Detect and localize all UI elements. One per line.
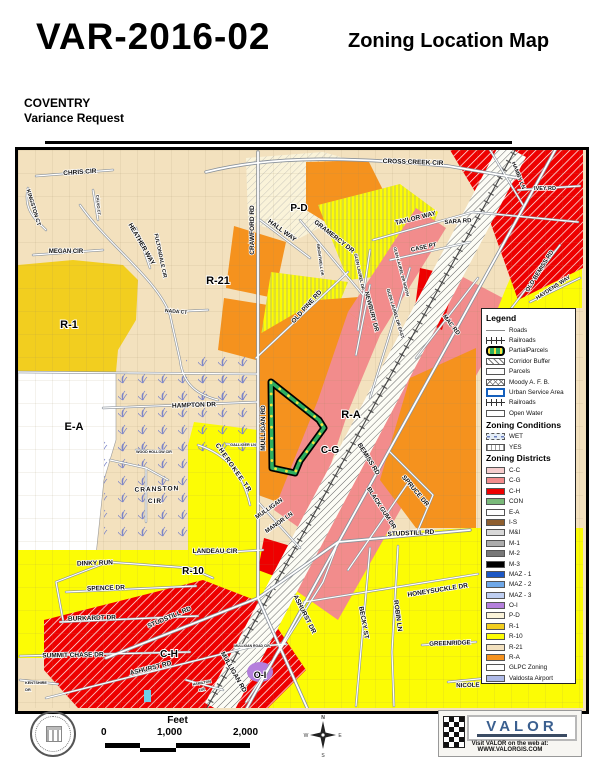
- maz-1-swatch: [486, 571, 505, 578]
- legend-label: PartialParcels: [509, 347, 548, 354]
- open-water-swatch: [486, 410, 505, 417]
- legend-panel: Legend RoadsRailroadsPartialParcelsCorri…: [481, 308, 576, 684]
- legend-district: M-1: [486, 538, 573, 548]
- road-label: CIR: [148, 498, 162, 505]
- legend-label: C-H: [509, 488, 520, 495]
- page: VAR-2016-02 Zoning Location Map COVENTRY…: [0, 0, 600, 776]
- zone-label: E-A: [65, 421, 84, 433]
- legend-district: R-1: [486, 621, 573, 631]
- legend-label: MAZ - 2: [509, 581, 531, 588]
- con-swatch: [486, 498, 505, 505]
- roads-swatch: [486, 327, 505, 334]
- road-label: DINKY RUN: [77, 559, 114, 567]
- compass-rose: N E S W: [303, 712, 343, 758]
- header-divider: [45, 141, 512, 144]
- zoning-map: CHRIS CIRKINGSTON CTMEGAN CIRHEATHER WAY…: [15, 147, 589, 714]
- c-h-swatch: [486, 488, 505, 495]
- legend-district: M-2: [486, 548, 573, 558]
- legend-items: RoadsRailroadsPartialParcelsCorridor Buf…: [486, 325, 573, 419]
- legend-label: M-3: [509, 561, 520, 568]
- road-label: KENTSHIRE: [25, 681, 47, 685]
- legend-label: R-10: [509, 633, 523, 640]
- zone-label: R-10: [182, 566, 204, 577]
- zone-label: C-G: [321, 445, 340, 456]
- county-seal: [30, 711, 76, 757]
- road-label: DR: [25, 688, 31, 692]
- road-label: MULLIGAN RD: [260, 405, 267, 451]
- valor-wordmark: VALOR: [469, 718, 575, 735]
- compass-n: N: [321, 715, 325, 721]
- map-type-title: Zoning Location Map: [348, 30, 549, 53]
- r-1-swatch: [486, 623, 505, 630]
- zoning-conditions-title: Zoning Conditions: [486, 420, 573, 430]
- legend-label: M&I: [509, 529, 520, 536]
- legend-district: R-10: [486, 632, 573, 642]
- m-3-swatch: [486, 561, 505, 568]
- m-i-swatch: [486, 529, 505, 536]
- legend-label: Valdosta Airport: [509, 675, 553, 682]
- legend-district: E-A: [486, 507, 573, 517]
- yes-swatch: [486, 444, 505, 451]
- glpc-zoning-swatch: [486, 664, 505, 671]
- legend-item: PartialParcels: [486, 346, 573, 356]
- e-a-swatch: [486, 509, 505, 516]
- r-21-swatch: [486, 644, 505, 651]
- legend-district: GLPC Zoning: [486, 663, 573, 673]
- scale-units-label: Feet: [95, 715, 260, 726]
- maz-3-swatch: [486, 592, 505, 599]
- legend-district: CON: [486, 496, 573, 506]
- legend-item: Corridor Buffer: [486, 356, 573, 366]
- parcels-swatch: [486, 368, 505, 375]
- legend-district: MAZ - 3: [486, 590, 573, 600]
- legend-districts: C-CC-GC-HCONE-AI-SM&IM-1M-2M-3MAZ - 1MAZ…: [486, 465, 573, 683]
- road-label: CRAWFORD RD: [249, 205, 256, 255]
- road-label: NICOLE: [456, 682, 480, 690]
- c-c-swatch: [486, 467, 505, 474]
- legend-district: MAZ - 1: [486, 569, 573, 579]
- legend-label: CON: [509, 498, 523, 505]
- legend-label: Open Water: [509, 410, 543, 417]
- legend-condition: WET: [486, 432, 573, 442]
- legend-label: M-1: [509, 540, 520, 547]
- scale-tick-1000: 1,000: [157, 727, 182, 738]
- legend-district: Valdosta Airport: [486, 673, 573, 683]
- road-label: MEGAN CIR: [49, 249, 84, 255]
- legend-label: O-I: [509, 602, 518, 609]
- scale-bar-segments: [105, 743, 250, 753]
- legend-district: P-D: [486, 611, 573, 621]
- corridor-buffer-swatch: [486, 358, 505, 365]
- legend-label: GLPC Zoning: [509, 664, 547, 671]
- valor-logo-block: VALOR Visit VALOR on the web at: WWW.VAL…: [438, 710, 582, 757]
- case-number-title: VAR-2016-02: [36, 16, 270, 58]
- legend-label: P-D: [509, 612, 520, 619]
- legend-district: C-H: [486, 486, 573, 496]
- legend-label: Urban Service Area: [509, 389, 564, 396]
- i-s-swatch: [486, 519, 505, 526]
- railroads-swatch: [486, 399, 505, 406]
- zone-label: O-I: [254, 670, 267, 680]
- project-name: COVENTRY: [24, 96, 90, 110]
- valor-web-line: Visit VALOR on the web at: WWW.VALORGIS.…: [439, 741, 581, 753]
- legend-item: Parcels: [486, 367, 573, 377]
- zone-label: C-H: [160, 649, 178, 660]
- legend-label: Moody A. F. B.: [509, 379, 550, 386]
- legend-item: Roads: [486, 325, 573, 335]
- scale-bar: Feet 0 1,000 2,000: [95, 713, 265, 757]
- legend-label: MAZ - 1: [509, 571, 531, 578]
- legend-label: I-S: [509, 519, 517, 526]
- legend-label: R-1: [509, 623, 519, 630]
- legend-district: C-G: [486, 476, 573, 486]
- maz-2-swatch: [486, 581, 505, 588]
- moody-a-f-b--swatch: [486, 379, 505, 386]
- road-label: SPENCE DR: [87, 584, 125, 592]
- road-label: IVEY RD: [534, 186, 556, 192]
- valdosta-airport-swatch: [486, 675, 505, 682]
- legend-district: MAZ - 2: [486, 580, 573, 590]
- zone-label: R-1: [60, 319, 78, 331]
- legend-item: Moody A. F. B.: [486, 377, 573, 387]
- road-label: MULLIGAN ROAD CIR: [234, 644, 270, 648]
- legend-label: C-C: [509, 467, 520, 474]
- c-g-swatch: [486, 477, 505, 484]
- compass-s: S: [321, 753, 325, 758]
- partialparcels-swatch: [486, 346, 505, 356]
- legend-label: Corridor Buffer: [509, 358, 550, 365]
- legend-label: YES: [509, 444, 522, 451]
- road-label: SUMMIT CHASE DR: [42, 651, 104, 659]
- legend-label: Parcels: [509, 368, 530, 375]
- legend-item: Railroads: [486, 335, 573, 345]
- valor-wordmark-box: VALOR: [467, 715, 577, 741]
- legend-label: Railroads: [509, 399, 536, 406]
- zoning-districts-title: Zoning Districts: [486, 453, 573, 463]
- r-a-swatch: [486, 654, 505, 661]
- urban-service-area-swatch: [486, 388, 505, 397]
- legend-district: I-S: [486, 517, 573, 527]
- legend-label: Roads: [509, 327, 527, 334]
- legend-label: MAZ - 3: [509, 592, 531, 599]
- legend-district: O-I: [486, 600, 573, 610]
- legend-item: Urban Service Area: [486, 387, 573, 397]
- road-label: GREENRIDGE: [429, 639, 471, 647]
- scale-tick-2000: 2,000: [233, 727, 258, 738]
- road-label: LANDEAU CIR: [193, 548, 238, 555]
- legend-condition: YES: [486, 442, 573, 452]
- scale-tick-0: 0: [101, 727, 107, 738]
- legend-conditions: WETYES: [486, 432, 573, 453]
- request-type: Variance Request: [24, 111, 124, 125]
- m-2-swatch: [486, 550, 505, 557]
- legend-label: WET: [509, 433, 523, 440]
- wet-swatch: [486, 433, 505, 440]
- legend-district: C-C: [486, 465, 573, 475]
- legend-title: Legend: [486, 313, 573, 323]
- legend-label: R-A: [509, 654, 520, 661]
- county-seal-courthouse: [46, 726, 62, 742]
- legend-label: R-21: [509, 644, 523, 651]
- legend-district: R-21: [486, 642, 573, 652]
- zone-label: R-21: [206, 275, 230, 287]
- compass-center: [321, 733, 324, 736]
- compass-e: E: [338, 733, 342, 739]
- zone-label: P-D: [290, 203, 307, 214]
- o-i-swatch: [486, 602, 505, 609]
- legend-item: Open Water: [486, 408, 573, 418]
- road-label: GALLIGER LN: [230, 443, 256, 447]
- zone-label: R-A: [341, 409, 361, 421]
- compass-w: W: [304, 733, 309, 739]
- r-10-swatch: [486, 633, 505, 640]
- road-label: WOOD HOLLOW CIR: [136, 450, 172, 454]
- legend-label: E-A: [509, 509, 520, 516]
- p-d-swatch: [486, 612, 505, 619]
- legend-label: M-2: [509, 550, 520, 557]
- legend-item: Railroads: [486, 398, 573, 408]
- legend-label: C-G: [509, 477, 521, 484]
- legend-label: Railroads: [509, 337, 536, 344]
- railroads-swatch: [486, 337, 505, 344]
- legend-district: R-A: [486, 652, 573, 662]
- m-1-swatch: [486, 540, 505, 547]
- legend-district: M-3: [486, 559, 573, 569]
- valor-tagline-bar: [477, 734, 567, 738]
- legend-district: M&I: [486, 528, 573, 538]
